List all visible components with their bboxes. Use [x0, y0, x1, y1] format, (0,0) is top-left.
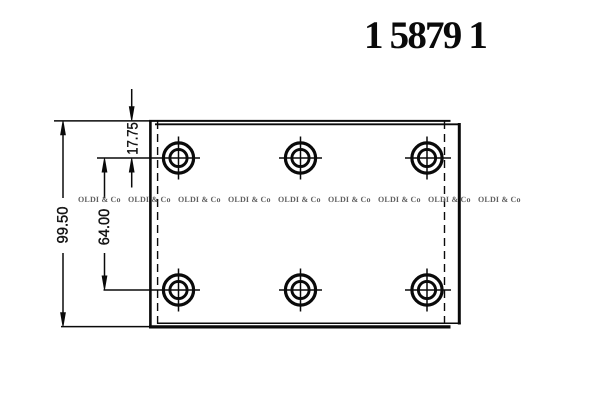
svg-text:OLDI & Co: OLDI & Co	[478, 195, 521, 204]
svg-text:OLDI & Co: OLDI & Co	[428, 195, 471, 204]
svg-text:OLDI & Co: OLDI & Co	[328, 195, 371, 204]
svg-text:OLDI & Co: OLDI & Co	[278, 195, 321, 204]
svg-text:17.75: 17.75	[125, 122, 142, 155]
svg-text:99.50: 99.50	[55, 207, 72, 244]
svg-text:OLDI & Co: OLDI & Co	[378, 195, 421, 204]
svg-text:OLDI & Co: OLDI & Co	[228, 195, 271, 204]
svg-text:OLDI & Co: OLDI & Co	[128, 195, 171, 204]
svg-text:OLDI & Co: OLDI & Co	[78, 195, 121, 204]
svg-text:OLDI & Co: OLDI & Co	[178, 195, 221, 204]
svg-text:1 5879 1: 1 5879 1	[364, 14, 486, 57]
svg-text:64.00: 64.00	[96, 209, 113, 246]
